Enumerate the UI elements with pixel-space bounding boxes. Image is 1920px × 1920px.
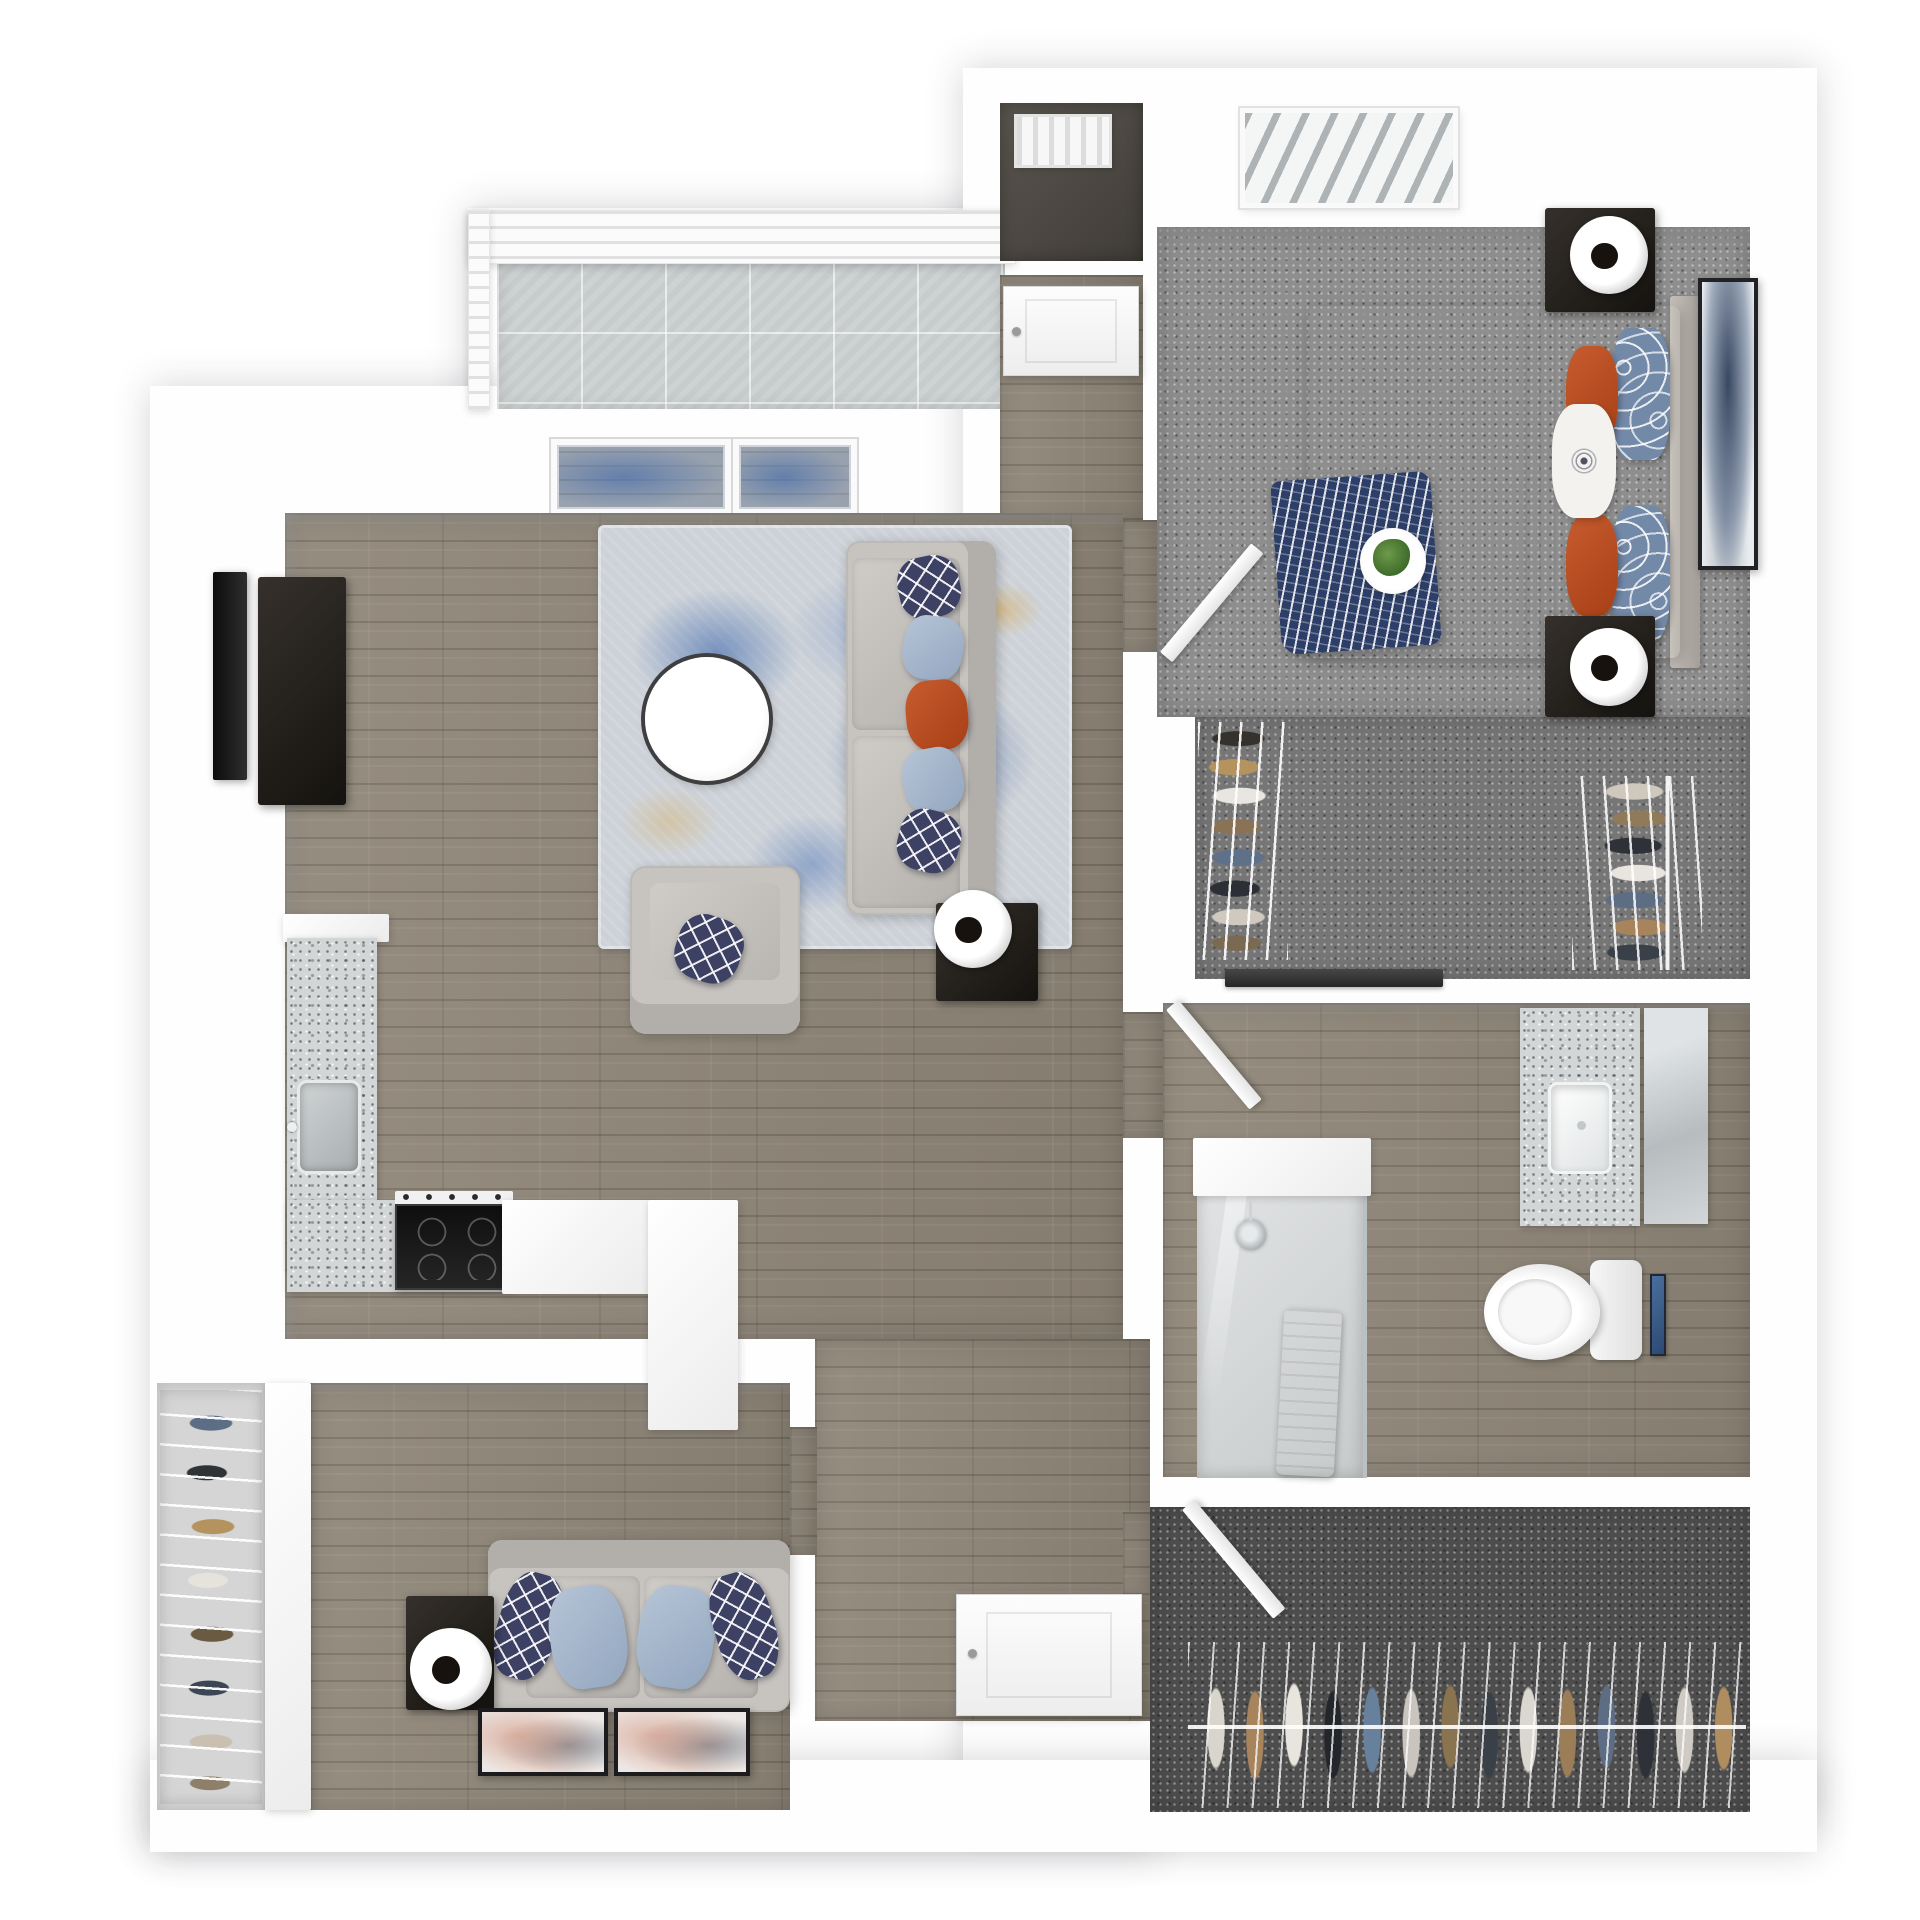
vanity-sink	[1548, 1082, 1612, 1174]
bathroom-doorway-floor	[1123, 1012, 1165, 1138]
sofa-pillow-orange	[903, 677, 971, 752]
bedroom-doorway-floor	[1123, 520, 1159, 652]
shower-halfwall	[1193, 1138, 1371, 1196]
den-closet-clothes	[160, 1390, 262, 1804]
nightstand-lamp-1	[1570, 216, 1648, 294]
front-door	[956, 1594, 1142, 1716]
den-art-2	[614, 1708, 750, 1776]
balcony-floor	[497, 262, 1005, 409]
den-art-1	[478, 1708, 608, 1776]
bedroom-wall-art	[1698, 278, 1758, 570]
bed-pillow-bluepat-1	[1612, 328, 1670, 460]
vanity-mirror	[1644, 1008, 1708, 1224]
balcony-railing	[468, 210, 1016, 264]
walkin-rack-west	[1198, 722, 1288, 960]
bedroom-north-wallface	[1157, 227, 1750, 253]
kitchen-counter-white	[502, 1200, 650, 1294]
shower-head	[1236, 1220, 1266, 1250]
bed-breakfast-tray	[1360, 528, 1426, 594]
entry-door	[1003, 286, 1139, 376]
nightstand-lamp-2	[1570, 628, 1648, 706]
bedroom-window-blinds	[1240, 108, 1458, 208]
bed-pillow-mandala	[1552, 404, 1616, 518]
toilet-bowl	[1484, 1264, 1600, 1360]
den-closet-door-panel	[265, 1383, 311, 1810]
floor-plan	[0, 0, 1920, 1920]
den-lamp	[410, 1628, 492, 1710]
walkin-rack-east	[1572, 776, 1702, 970]
laundry-vent	[1014, 114, 1112, 168]
coffee-table	[645, 657, 769, 781]
media-console	[258, 577, 346, 805]
bathroom-wall-art	[1650, 1274, 1666, 1356]
walkin-door-track	[1225, 969, 1443, 987]
balcony-side-railing	[468, 210, 490, 410]
living-window-2	[733, 439, 857, 515]
den-doorway-floor	[790, 1427, 817, 1555]
sofa-lamp	[934, 890, 1012, 968]
kitchen-peninsula	[648, 1200, 738, 1430]
kitchen-sink	[297, 1080, 361, 1174]
shower-towel	[1276, 1309, 1343, 1478]
closet2-clothes	[1188, 1642, 1746, 1808]
living-window-1	[551, 439, 731, 515]
kitchen-stove	[395, 1204, 513, 1290]
bed-pillow-orange-2	[1566, 514, 1618, 616]
tv	[213, 572, 247, 780]
